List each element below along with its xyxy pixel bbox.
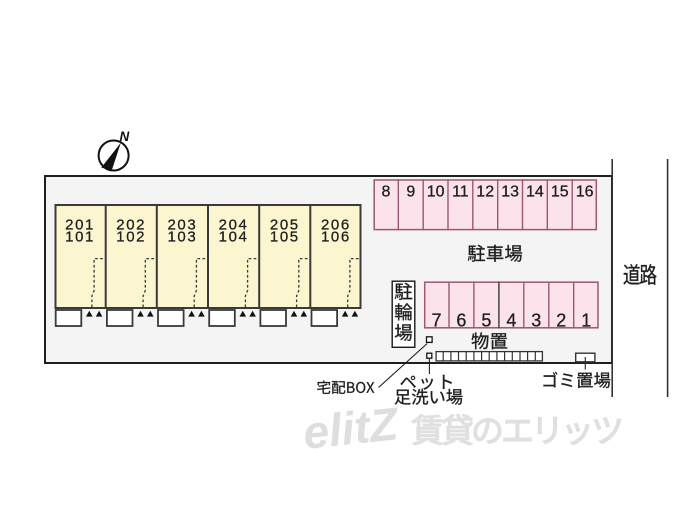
svg-text:11: 11 bbox=[452, 184, 469, 201]
svg-text:9: 9 bbox=[406, 184, 415, 201]
svg-text:2: 2 bbox=[556, 311, 566, 331]
svg-text:4: 4 bbox=[506, 311, 516, 331]
svg-text:102: 102 bbox=[116, 228, 146, 245]
svg-text:14: 14 bbox=[526, 184, 544, 201]
svg-text:10: 10 bbox=[427, 184, 445, 201]
svg-text:8: 8 bbox=[381, 184, 390, 201]
svg-text:105: 105 bbox=[270, 228, 300, 245]
svg-text:elitZ: elitZ bbox=[301, 397, 402, 459]
svg-text:7: 7 bbox=[431, 311, 441, 331]
svg-text:N: N bbox=[120, 129, 130, 144]
svg-text:104: 104 bbox=[219, 228, 249, 245]
svg-text:3: 3 bbox=[531, 311, 541, 331]
svg-text:103: 103 bbox=[167, 228, 197, 245]
svg-text:6: 6 bbox=[456, 311, 466, 331]
svg-text:101: 101 bbox=[65, 228, 95, 245]
svg-text:1: 1 bbox=[581, 311, 591, 331]
svg-text:106: 106 bbox=[321, 228, 351, 245]
svg-text:13: 13 bbox=[501, 184, 519, 201]
svg-text:5: 5 bbox=[481, 311, 491, 331]
svg-text:12: 12 bbox=[476, 184, 494, 201]
svg-text:15: 15 bbox=[551, 184, 569, 201]
svg-text:16: 16 bbox=[576, 184, 594, 201]
